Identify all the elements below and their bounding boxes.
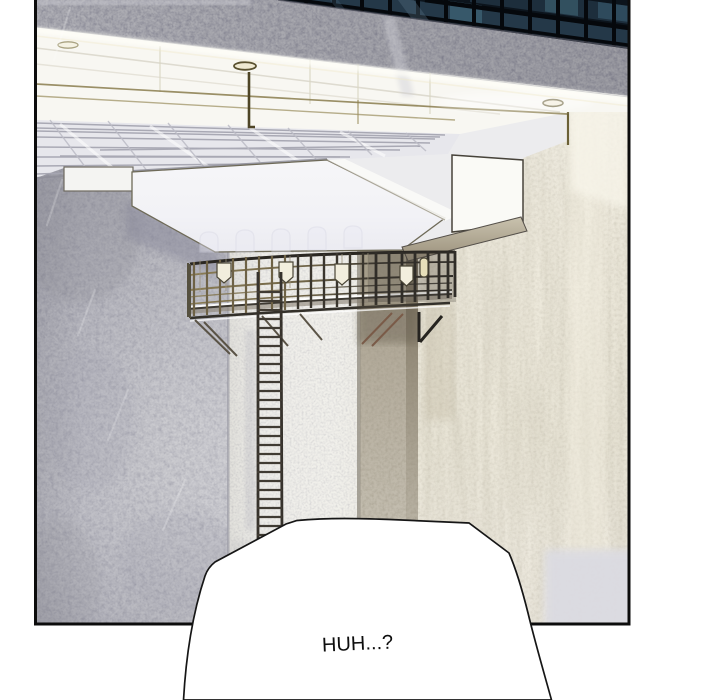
svg-text:HUH...?: HUH...? [322,631,394,656]
